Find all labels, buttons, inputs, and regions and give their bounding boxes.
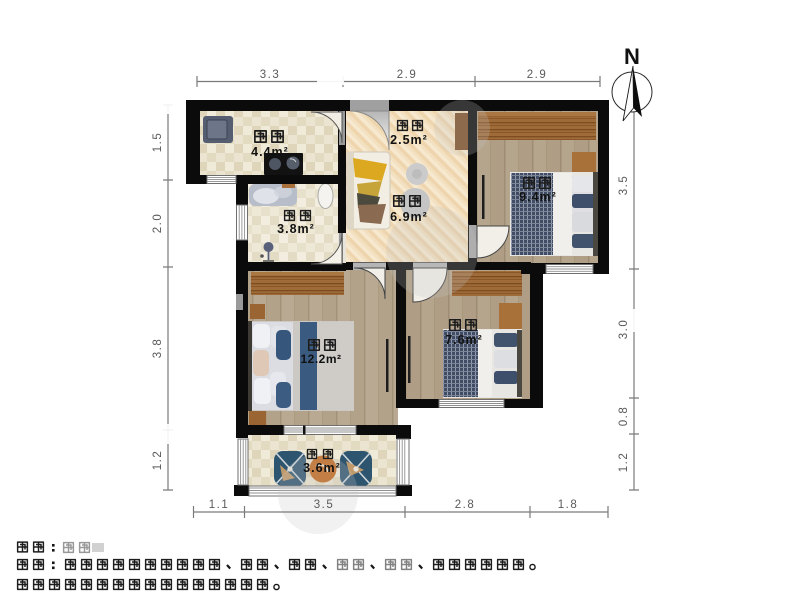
svg-text:1.2: 1.2 [152,450,164,471]
svg-text:2.9: 2.9 [397,69,418,81]
svg-text:3.3: 3.3 [260,69,281,81]
svg-text:12.2m²: 12.2m² [300,352,341,366]
svg-text:1.8: 1.8 [558,499,579,511]
svg-text:3.5: 3.5 [314,499,335,511]
svg-text:7.6m²: 7.6m² [445,333,483,347]
svg-text:1.2: 1.2 [618,452,630,473]
svg-text:3.8m²: 3.8m² [277,222,315,236]
svg-text:3.6m²: 3.6m² [303,461,341,475]
svg-text:1.1: 1.1 [209,499,230,511]
svg-text:N: N [624,44,640,69]
svg-text:6.9m²: 6.9m² [390,210,428,224]
svg-text:1.5: 1.5 [152,132,164,153]
svg-text:2.0: 2.0 [152,213,164,234]
svg-text:9.4m²: 9.4m² [519,190,557,204]
svg-text:2.9: 2.9 [527,69,548,81]
svg-text:3.5: 3.5 [618,175,630,196]
svg-text:3.8: 3.8 [152,338,164,359]
svg-text:0.8: 0.8 [618,406,630,427]
svg-text:4.4m²: 4.4m² [251,145,289,159]
svg-text:2.8: 2.8 [455,499,476,511]
svg-text:2.5m²: 2.5m² [390,133,428,147]
